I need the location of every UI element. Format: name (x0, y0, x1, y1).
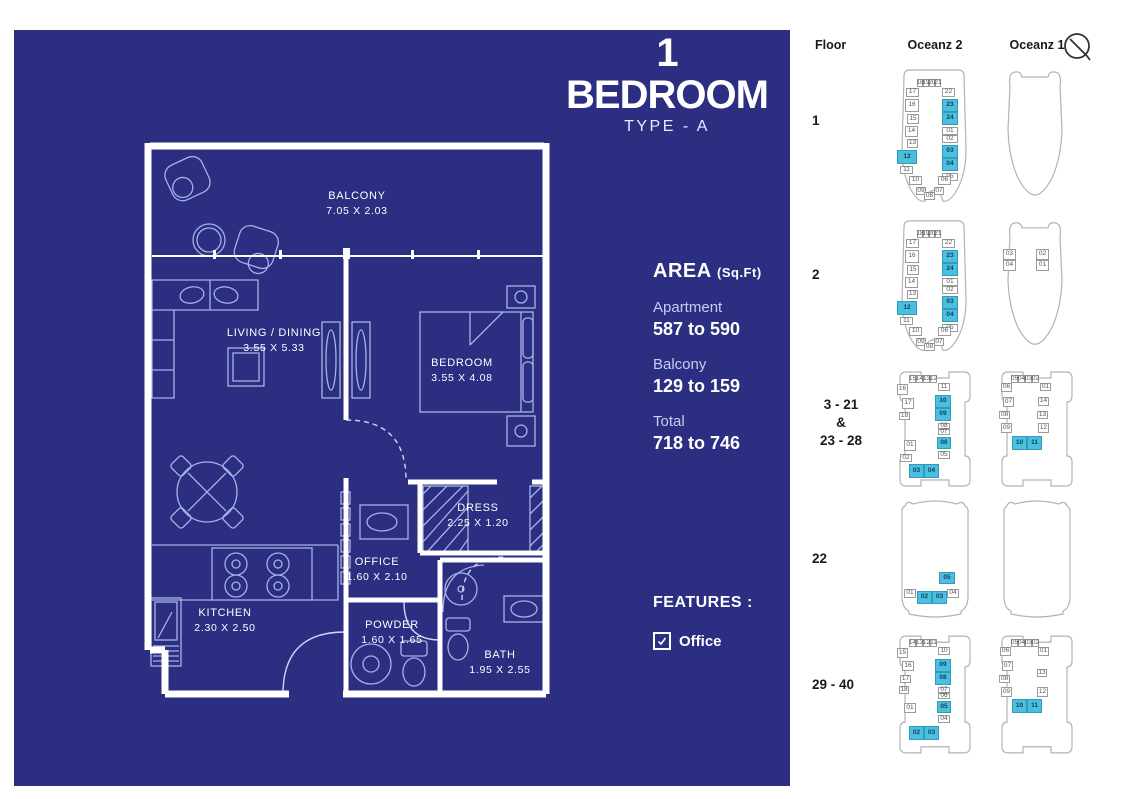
unit-cell: 16 (905, 99, 919, 112)
area-unit: (Sq.Ft) (717, 265, 762, 280)
unit-cell: 03 (1003, 249, 1016, 260)
unit-cell: 06 (938, 693, 950, 699)
unit-cell: 08 (924, 343, 935, 351)
unit-cell: 15 (907, 265, 919, 275)
unit-cell: 11 (900, 317, 913, 325)
unit-cell: 12 (897, 150, 917, 164)
unit-cell: 16 (902, 661, 914, 671)
features-heading: FEATURES : (653, 594, 753, 612)
unit-cell: 07 (934, 338, 944, 346)
unit-cell: 22 (942, 88, 955, 97)
floor-label: 29 - 40 (812, 676, 870, 694)
unit-cell: 02 (909, 726, 924, 740)
hull-outline (995, 496, 1079, 621)
unit-cell: 12 (930, 375, 937, 383)
unit-cell: 06 (1001, 383, 1012, 392)
unit-cell: 10 (909, 176, 922, 185)
unit-cell: 24 (942, 112, 958, 125)
keyplan-oceanz2: 151413121110090807060516171801020304 (893, 366, 977, 491)
unit-cell: 07 (1002, 661, 1013, 671)
unit-cell: 24 (942, 263, 958, 276)
unit-cell: 15 (897, 648, 908, 658)
unit-cell: 05 (939, 572, 955, 584)
unit-cell: 11 (1027, 436, 1042, 450)
area-item-total: Total 718 to 746 (653, 413, 783, 454)
unit-cell: 13 (1037, 411, 1048, 419)
unit-cell: 13 (907, 139, 918, 148)
floor-label: 22 (812, 550, 870, 568)
unit-cell: 04 (947, 589, 959, 598)
area-value: 129 to 159 (653, 376, 783, 397)
unit-cell: 12 (1037, 687, 1048, 697)
unit-cell: 12 (1038, 423, 1049, 433)
unit-cell: 02 (1036, 249, 1049, 260)
unit-cell: 12 (923, 639, 930, 647)
unit-cell: 06 (1000, 647, 1011, 656)
unit-cell: 17 (902, 398, 914, 409)
unit-cell: 08 (924, 192, 935, 200)
hull-outline (995, 213, 1079, 361)
unit-cell: 09 (1001, 423, 1012, 433)
check-icon (657, 636, 667, 646)
unit-cell: 06 (938, 327, 951, 336)
unit-cell: 10 (909, 327, 922, 336)
page: BALCONY 7.05 X 2.03 LIVING / DINING 3.55… (0, 0, 1122, 799)
unit-cell: 11 (938, 383, 950, 391)
keyplan-oceanz2: 1819202117222324010203040516151413121110… (893, 62, 977, 212)
unit-cell: 11 (900, 166, 913, 174)
area-value: 718 to 746 (653, 433, 783, 454)
unit-cell: 06 (938, 176, 951, 185)
unit-cell: 04 (942, 158, 958, 171)
unit-cell: 11 (1027, 699, 1042, 713)
unit-cell: 21 (935, 79, 941, 87)
unit-cell: 01 (942, 127, 958, 135)
unit-cell: 03 (909, 464, 924, 478)
unit-cell: 03 (942, 296, 958, 309)
unit-cell: 03 (924, 726, 939, 740)
unit-cell: 10 (935, 395, 951, 408)
unit-cell: 16 (897, 384, 908, 395)
unit-cell: 02 (917, 591, 932, 604)
area-label: Balcony (653, 356, 783, 373)
unit-cell: 10 (938, 647, 950, 655)
unit-cell: 08 (935, 672, 951, 685)
unit-cell: 14 (905, 126, 918, 137)
unit-cell: 23 (942, 99, 958, 112)
unit-cell: 04 (924, 464, 939, 478)
area-block: AREA (Sq.Ft) Apartment 587 to 590 Balcon… (653, 260, 783, 454)
unit-cell: 03 (942, 145, 958, 158)
unit-cell: 17 (900, 675, 911, 683)
unit-cell: 02 (1032, 375, 1039, 383)
unit-cell: 01 (904, 703, 916, 713)
unit-cell: 05 (937, 701, 951, 713)
unit-cell: 17 (906, 88, 919, 97)
unit-cell: 08 (999, 411, 1010, 419)
unit-cell: 05 (938, 451, 950, 459)
hull-outline (995, 62, 1079, 212)
keyplan-oceanz1: 03040201 (995, 213, 1079, 361)
unit-cell: 04 (1003, 260, 1016, 271)
unit-cell: 22 (942, 239, 955, 248)
unit-cell: 07 (934, 187, 944, 195)
unit-cell: 18 (899, 412, 910, 420)
feature-office: Office (653, 632, 753, 650)
keyplan-oceanz1 (995, 496, 1079, 621)
floor-label: 1 (812, 112, 870, 130)
column-header-oceanz2: Oceanz 2 (893, 38, 977, 52)
area-heading: AREA (653, 260, 711, 282)
checkbox-icon (653, 632, 671, 650)
unit-cell: 07 (938, 429, 950, 435)
area-value: 587 to 590 (653, 319, 783, 340)
page-title: 1 BEDROOM (558, 32, 776, 116)
unit-cell: 02 (942, 135, 958, 143)
unit-cell: 23 (942, 250, 958, 263)
unit-cell: 17 (906, 239, 919, 248)
unit-cell: 02 (942, 286, 958, 294)
unit-cell: 04 (938, 715, 950, 723)
unit-cell: 09 (935, 408, 951, 421)
floor-label: 3 - 21&23 - 28 (812, 396, 870, 451)
unit-cell: 12 (897, 301, 917, 315)
feature-label: Office (679, 633, 722, 650)
unit-cell: 11 (930, 639, 937, 647)
unit-cell: 14 (1038, 397, 1049, 406)
unit-cell: 01 (904, 589, 916, 598)
title-block: 1 BEDROOM TYPE - A (558, 32, 776, 136)
column-header-floor: Floor (815, 38, 846, 52)
keyplan-oceanz1: 05040302010607080913121011 (995, 630, 1079, 758)
unit-cell: 04 (942, 309, 958, 322)
unit-cell: 21 (935, 230, 941, 238)
unit-cell: 08 (999, 675, 1010, 683)
unit-cell: 01 (904, 440, 916, 451)
unit-cell: 01 (1040, 383, 1051, 391)
area-label: Apartment (653, 299, 783, 316)
features-block: FEATURES : Office (653, 594, 753, 650)
unit-cell: 09 (1001, 687, 1012, 697)
area-item-balcony: Balcony 129 to 159 (653, 356, 783, 397)
unit-cell: 14 (905, 277, 918, 288)
unit-cell: 01 (1036, 260, 1049, 271)
unit-cell: 09 (935, 659, 951, 672)
unit-cell: 06 (937, 437, 951, 449)
floor-label: 2 (812, 266, 870, 284)
unit-cell: 13 (1037, 669, 1047, 677)
unit-cell: 02 (900, 454, 912, 462)
unit-cell: 13 (907, 290, 918, 299)
keyplan-oceanz2: 0501020304 (893, 496, 977, 621)
unit-cell: 01 (1038, 647, 1049, 656)
unit-cell: 02 (1032, 639, 1039, 647)
unit-cell: 10 (1012, 436, 1027, 450)
unit-cell: 16 (905, 250, 919, 263)
keyplan-oceanz1: 0504030201060708091413121011 (995, 366, 1079, 491)
area-item-apartment: Apartment 587 to 590 (653, 299, 783, 340)
keyplan-oceanz1 (995, 62, 1079, 212)
unit-cell: 18 (899, 686, 909, 694)
page-subtitle: TYPE - A (558, 118, 776, 136)
keyplan-oceanz2: 141312111009080706050415161718010203 (893, 630, 977, 758)
unit-cell: 03 (932, 591, 947, 604)
unit-cell: 15 (907, 114, 919, 124)
unit-cell: 10 (1012, 699, 1027, 713)
unit-cell: 01 (942, 278, 958, 286)
unit-cell: 07 (1003, 397, 1014, 407)
area-label: Total (653, 413, 783, 430)
keyplan-oceanz2: 1819202117222324010203040516151413121110… (893, 213, 977, 361)
